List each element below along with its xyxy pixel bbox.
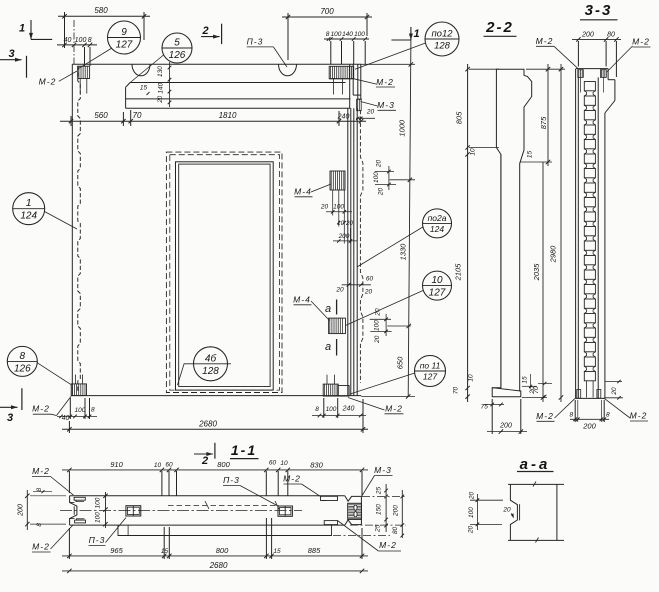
svg-text:3: 3: [7, 412, 13, 424]
svg-text:560: 560: [94, 111, 108, 120]
svg-text:1-1: 1-1: [231, 442, 257, 458]
svg-text:8: 8: [315, 406, 319, 413]
svg-text:М-2: М-2: [283, 474, 301, 484]
svg-text:М-2: М-2: [632, 37, 650, 47]
svg-text:М-2: М-2: [536, 411, 554, 421]
svg-text:8: 8: [36, 488, 43, 492]
svg-text:875: 875: [539, 116, 548, 129]
svg-text:60: 60: [269, 460, 277, 467]
svg-text:127: 127: [116, 40, 133, 51]
svg-text:8: 8: [326, 31, 330, 38]
svg-text:М-2: М-2: [32, 542, 50, 552]
svg-text:25: 25: [376, 487, 383, 496]
svg-text:200: 200: [392, 505, 399, 517]
svg-text:200: 200: [499, 423, 512, 430]
svg-text:700: 700: [320, 7, 334, 16]
svg-text:по2а: по2а: [428, 213, 447, 223]
svg-text:10: 10: [154, 462, 162, 469]
svg-text:15: 15: [273, 548, 281, 555]
svg-text:М-2: М-2: [630, 411, 648, 421]
svg-text:20: 20: [468, 492, 475, 501]
svg-text:100: 100: [374, 320, 381, 331]
svg-text:9: 9: [121, 27, 127, 38]
svg-text:910: 910: [110, 460, 123, 469]
svg-text:1330: 1330: [399, 243, 408, 261]
svg-text:10: 10: [468, 374, 475, 382]
svg-text:М-2: М-2: [39, 77, 57, 87]
svg-text:965: 965: [110, 546, 123, 555]
svg-text:a: a: [325, 303, 331, 315]
svg-text:М-3: М-3: [374, 465, 392, 475]
svg-text:2680: 2680: [198, 419, 217, 428]
svg-text:80: 80: [392, 527, 399, 535]
svg-text:М-2: М-2: [32, 404, 50, 414]
svg-text:10: 10: [431, 275, 443, 286]
svg-text:127: 127: [423, 372, 437, 382]
svg-text:200: 200: [581, 31, 594, 38]
svg-text:25: 25: [375, 524, 382, 533]
svg-text:20: 20: [366, 109, 375, 116]
svg-text:2680: 2680: [209, 561, 228, 570]
svg-text:1000: 1000: [398, 119, 407, 137]
svg-text:200: 200: [582, 421, 596, 430]
svg-text:2: 2: [201, 455, 208, 467]
svg-text:15: 15: [527, 151, 534, 159]
svg-text:М-2: М-2: [385, 404, 403, 414]
svg-text:200: 200: [18, 504, 25, 517]
svg-text:240: 240: [342, 405, 355, 412]
svg-text:по 11: по 11: [420, 361, 441, 371]
svg-text:М-4: М-4: [294, 187, 312, 197]
svg-text:8: 8: [91, 406, 95, 413]
svg-text:2-2: 2-2: [485, 19, 514, 36]
svg-text:140: 140: [158, 82, 165, 93]
svg-text:100: 100: [331, 31, 342, 38]
svg-text:20: 20: [467, 526, 474, 535]
svg-text:15: 15: [140, 85, 148, 92]
svg-text:124: 124: [20, 211, 37, 222]
svg-text:20: 20: [335, 287, 344, 294]
svg-text:П-3: П-3: [247, 37, 264, 47]
svg-text:1: 1: [26, 198, 32, 209]
svg-text:1: 1: [19, 23, 25, 35]
svg-text:15: 15: [522, 376, 529, 384]
svg-text:2105: 2105: [454, 263, 463, 282]
svg-text:20: 20: [376, 160, 383, 169]
svg-text:5: 5: [174, 38, 180, 49]
svg-text:a: a: [325, 341, 331, 353]
svg-text:20: 20: [378, 188, 385, 197]
svg-text:20: 20: [529, 386, 536, 395]
svg-text:127: 127: [429, 288, 446, 299]
svg-text:М-2: М-2: [379, 540, 397, 550]
svg-text:8: 8: [569, 412, 573, 419]
svg-text:100: 100: [468, 507, 475, 518]
svg-text:1810: 1810: [219, 111, 237, 120]
svg-text:20: 20: [157, 95, 164, 103]
svg-text:100: 100: [373, 172, 380, 183]
svg-text:3-3: 3-3: [585, 2, 613, 19]
svg-text:140: 140: [342, 31, 353, 38]
svg-text:126: 126: [169, 50, 186, 61]
svg-text:a-a: a-a: [520, 456, 551, 473]
svg-text:580: 580: [94, 6, 108, 15]
svg-text:8: 8: [36, 523, 43, 527]
svg-text:4б: 4б: [205, 352, 217, 364]
svg-text:М-2: М-2: [536, 36, 554, 46]
svg-text:П-3: П-3: [223, 475, 240, 485]
svg-text:830: 830: [310, 461, 323, 470]
svg-text:100: 100: [75, 407, 86, 414]
svg-text:10: 10: [280, 460, 288, 467]
svg-text:128: 128: [434, 41, 451, 52]
svg-text:100: 100: [95, 512, 102, 523]
svg-text:20: 20: [345, 220, 353, 227]
svg-text:650: 650: [396, 356, 405, 369]
svg-text:20: 20: [502, 507, 511, 514]
svg-text:70: 70: [453, 387, 460, 395]
svg-text:8: 8: [88, 37, 92, 44]
svg-text:40: 40: [64, 37, 72, 44]
svg-text:2: 2: [201, 25, 208, 37]
svg-text:800: 800: [217, 460, 230, 469]
svg-text:М-2: М-2: [376, 77, 394, 87]
svg-text:805: 805: [455, 111, 464, 124]
svg-text:100: 100: [75, 37, 87, 44]
svg-text:М-3: М-3: [377, 100, 395, 110]
svg-text:20: 20: [611, 387, 618, 396]
svg-text:800: 800: [216, 546, 229, 555]
svg-text:150: 150: [375, 504, 382, 515]
svg-text:20: 20: [320, 204, 329, 211]
svg-text:М-2: М-2: [32, 466, 50, 476]
svg-text:80: 80: [607, 31, 615, 38]
svg-text:126: 126: [14, 363, 31, 374]
svg-text:40: 40: [62, 415, 70, 422]
svg-text:130: 130: [157, 66, 164, 77]
svg-text:100: 100: [333, 204, 344, 211]
svg-text:10: 10: [470, 148, 477, 156]
svg-text:60: 60: [366, 276, 374, 283]
svg-text:8: 8: [606, 412, 610, 419]
svg-text:20: 20: [364, 289, 373, 296]
svg-text:8: 8: [20, 351, 26, 362]
svg-text:885: 885: [308, 546, 321, 555]
svg-text:по12: по12: [431, 29, 453, 40]
svg-text:100: 100: [95, 497, 102, 508]
svg-text:М-4: М-4: [293, 295, 311, 305]
svg-text:3: 3: [8, 48, 14, 60]
svg-text:124: 124: [430, 224, 444, 234]
svg-text:70: 70: [133, 111, 142, 120]
svg-text:128: 128: [202, 366, 219, 377]
svg-text:1: 1: [413, 28, 419, 40]
svg-text:2980: 2980: [549, 245, 558, 264]
svg-text:75: 75: [481, 403, 489, 410]
svg-text:60: 60: [165, 462, 173, 469]
svg-text:100: 100: [354, 31, 365, 38]
svg-text:2035: 2035: [532, 263, 541, 282]
svg-text:20: 20: [374, 335, 381, 344]
svg-text:100: 100: [326, 406, 337, 413]
svg-text:П-3: П-3: [89, 535, 106, 545]
